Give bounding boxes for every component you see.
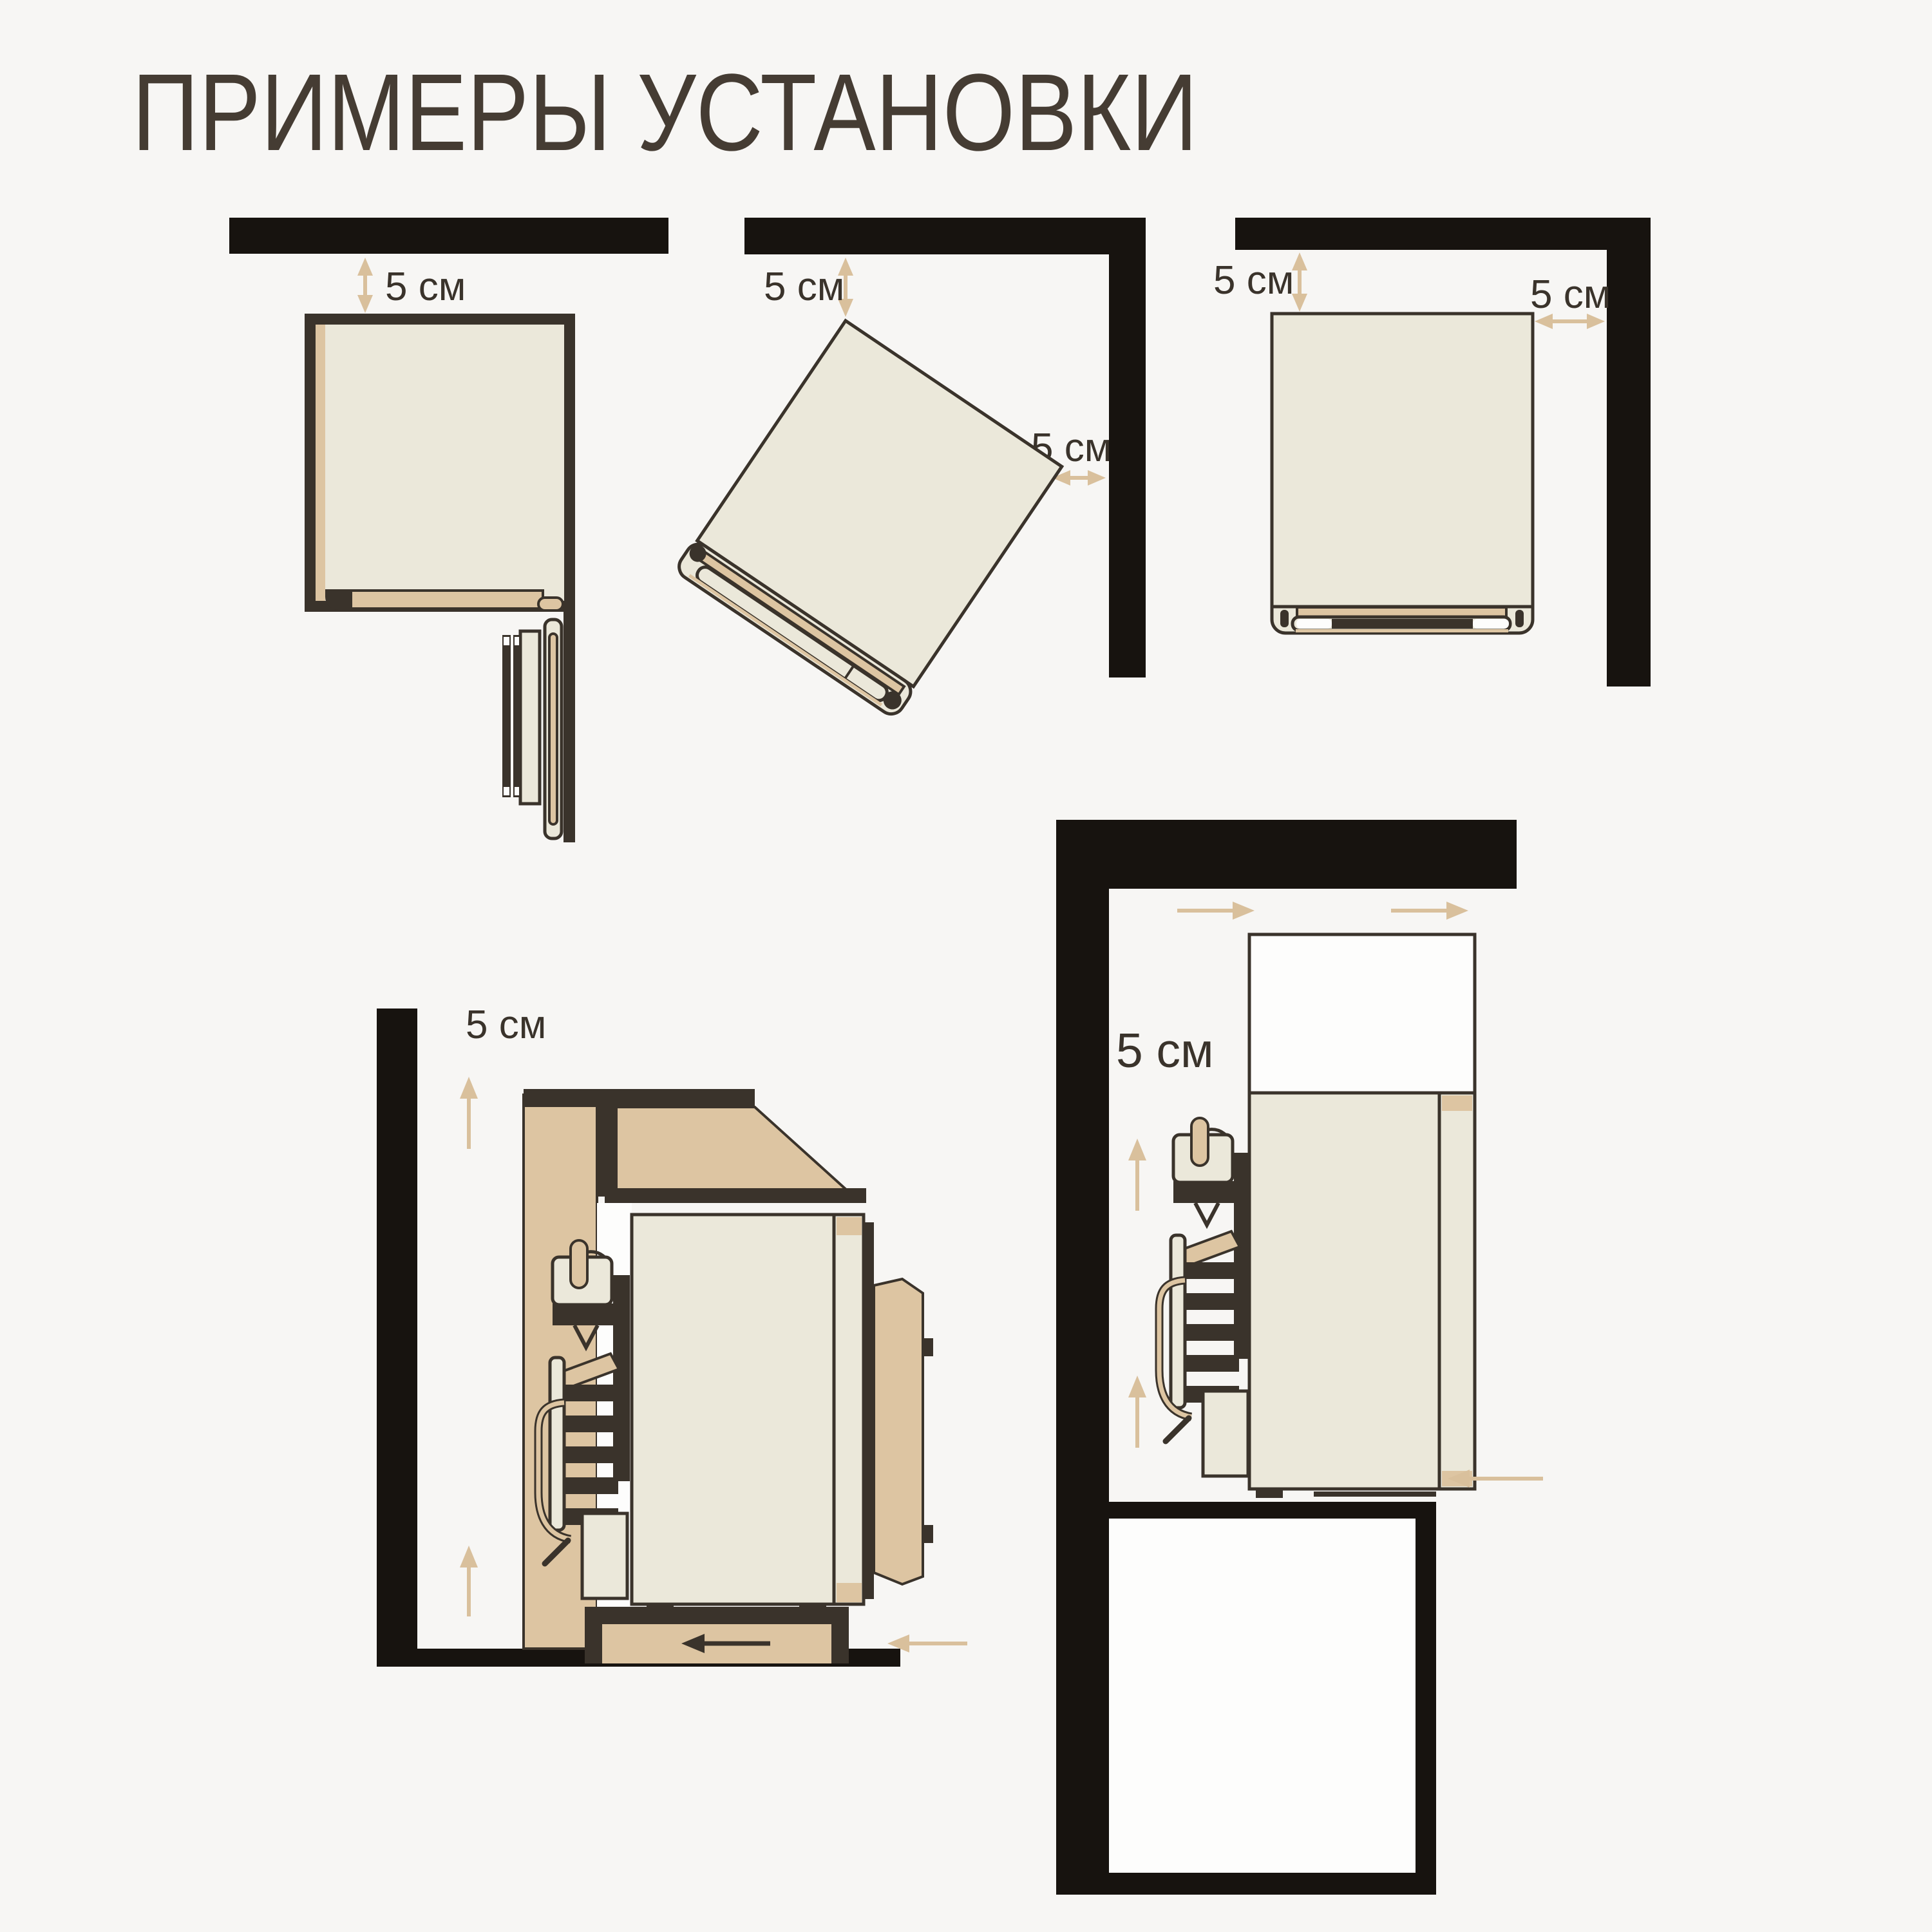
wall-side — [1607, 218, 1651, 687]
appliance-top-view — [305, 314, 575, 842]
compartment-bottom-panel — [1056, 1873, 1436, 1895]
airflow-arrow-up — [460, 1546, 478, 1616]
appliance-top-view-tilted — [674, 319, 1064, 719]
airflow-arrow-right — [1177, 902, 1255, 920]
diagram-corner-straight-top-view: 5 см 5 см — [1213, 218, 1651, 687]
arrow-head-up-icon — [1292, 252, 1307, 270]
arrow-head-down-icon — [1292, 294, 1307, 312]
arrow-head-down-icon — [357, 295, 373, 313]
clearance-label: 5 см — [1213, 258, 1294, 303]
airflow-arrow-up — [460, 1077, 478, 1149]
diagram-corner-tilted-top-view: 5 см 5 см — [674, 218, 1146, 719]
gasket-end-cap — [515, 787, 519, 795]
page-title: ПРИМЕРЫ УСТАНОВКИ — [132, 52, 1198, 174]
diagram-built-in-column-view: 5 см — [1056, 820, 1543, 1895]
handle-tab — [923, 1525, 933, 1543]
niche-lintel — [605, 1188, 866, 1203]
dimension-arrow-horizontal — [1052, 470, 1106, 486]
appliance-body — [632, 1215, 834, 1604]
appliance-top-view — [1272, 314, 1533, 633]
gasket-end-cap — [504, 637, 509, 645]
clearance-label: 5 см — [1116, 1023, 1214, 1077]
clearance-label: 5 см — [764, 265, 844, 309]
door-top-trim — [837, 1217, 862, 1235]
arrow-head-up-icon — [460, 1546, 478, 1567]
diagram-straight-wall-top-view: 5 см — [229, 218, 668, 842]
clearance-label: 5 см — [385, 265, 466, 309]
appliance-base-rail — [1314, 1492, 1436, 1497]
arrow-head-up-icon — [1128, 1376, 1146, 1397]
arrow-head-right-icon — [1233, 902, 1255, 920]
hinge-slot — [1280, 610, 1289, 627]
appliance-body — [316, 325, 564, 601]
side-insulation-strip — [316, 325, 325, 601]
door-inner-panel — [520, 631, 540, 804]
plinth-vent — [585, 1607, 849, 1663]
door-front-strip — [351, 591, 543, 609]
clearance-label: 5 см — [466, 1003, 546, 1047]
door-top-trim — [1442, 1095, 1472, 1111]
arrow-head-up-icon — [357, 258, 373, 276]
airflow-arrow-right — [1391, 902, 1468, 920]
door-side-view — [1439, 1093, 1475, 1489]
appliance-side-view — [632, 1215, 933, 1613]
top-air-space — [1249, 934, 1475, 1093]
handle-end-pill — [1473, 619, 1509, 629]
handle-end-pill — [1296, 619, 1332, 629]
door-handle-profile — [874, 1279, 923, 1584]
wall — [377, 1009, 417, 1649]
title-group: ПРИМЕРЫ УСТАНОВКИ — [132, 52, 1198, 174]
cabinet-top-panel — [524, 1089, 755, 1107]
appliance-body — [697, 321, 1062, 687]
diagram-cabinet-side-view: 5 см — [377, 1003, 967, 1667]
door-gasket-bar — [502, 635, 511, 797]
door-bottom-trim — [1296, 629, 1508, 632]
wall — [229, 218, 668, 254]
door-side-view — [834, 1215, 864, 1604]
appliance-foot — [1256, 1489, 1283, 1498]
gasket-end-cap — [504, 787, 509, 795]
arrow-head-up-icon — [460, 1077, 478, 1099]
cabinet-top-panel — [1056, 820, 1517, 889]
handle-grip-bar — [1332, 619, 1473, 629]
arrow-head-right-icon — [1446, 902, 1468, 920]
wall-side — [1056, 820, 1109, 1895]
wall-top — [744, 218, 1146, 254]
arrow-head-up-icon — [1128, 1139, 1146, 1160]
compartment-space — [1109, 1519, 1416, 1873]
cabinet-sloped-top — [616, 1107, 848, 1191]
hinge-slot — [1515, 610, 1524, 627]
handle-tab — [923, 1338, 933, 1356]
installation-diagrams-canvas: ПРИМЕРЫ УСТАНОВКИ 5 см — [0, 0, 1932, 1932]
shelf-divider — [1109, 1502, 1436, 1519]
arrow-head-right-icon — [1088, 470, 1106, 486]
installation-examples-page: ПРИМЕРЫ УСТАНОВКИ 5 см — [0, 0, 1932, 1932]
door-slab-stripe — [549, 634, 557, 824]
door-side-rail — [563, 612, 575, 842]
door-gasket-bar — [513, 635, 520, 797]
wall-side — [1109, 218, 1146, 677]
airflow-arrow-up — [1128, 1139, 1146, 1211]
appliance-body — [1272, 314, 1533, 607]
cabinet-baffle — [597, 1103, 616, 1197]
dimension-arrow-vertical — [357, 258, 373, 313]
door-front-rail — [864, 1222, 874, 1599]
clearance-label: 5 см — [1530, 272, 1611, 317]
door-open-assembly — [502, 612, 575, 842]
appliance-body — [1249, 1093, 1439, 1489]
compartment-side-panel — [1416, 1502, 1436, 1895]
airflow-arrow-up — [1128, 1376, 1146, 1448]
gasket-end-cap — [515, 637, 519, 645]
lower-cabinet-compartment — [1056, 1502, 1436, 1895]
wall-top — [1235, 218, 1651, 250]
hinge-pivot — [538, 598, 563, 611]
door-bottom-trim — [837, 1583, 862, 1602]
compressor-unit — [1159, 1118, 1251, 1476]
dimension-arrow-vertical — [1292, 252, 1307, 312]
appliance-side-view — [1249, 1093, 1475, 1498]
